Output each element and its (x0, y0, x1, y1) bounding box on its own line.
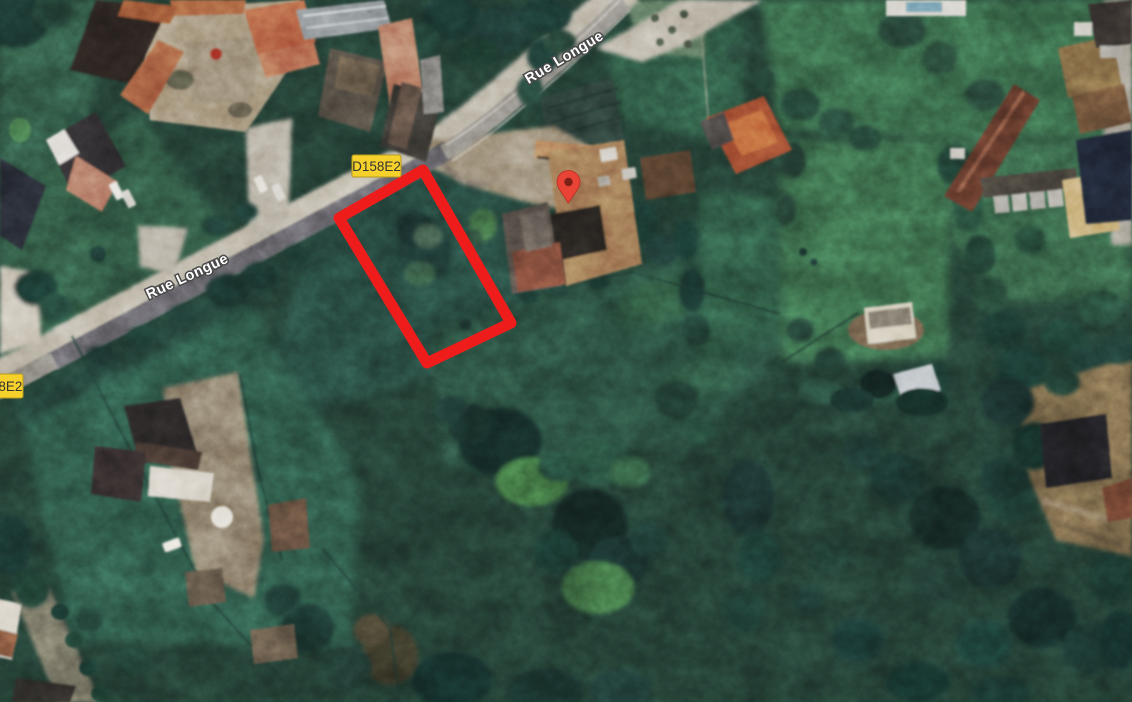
svg-text:D158E2: D158E2 (352, 159, 401, 174)
svg-text:D158E2: D158E2 (0, 379, 22, 394)
